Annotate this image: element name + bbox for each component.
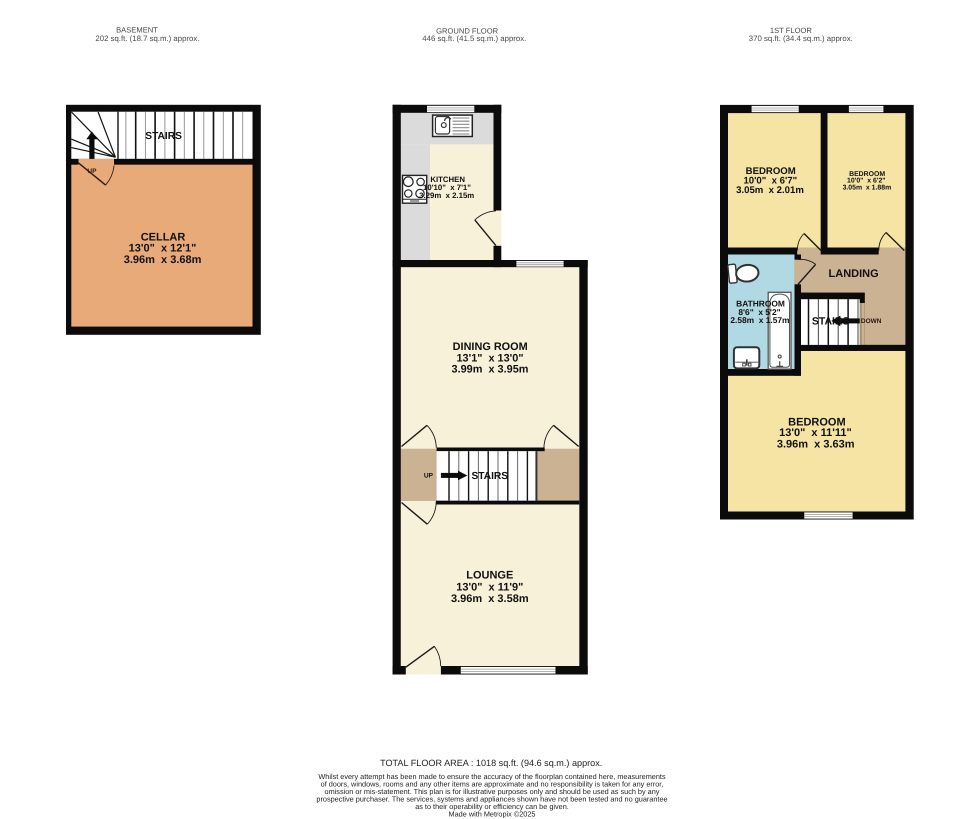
svg-text:3.96m x 3.68m: 3.96m x 3.68m [124, 254, 202, 266]
svg-text:UP: UP [87, 168, 97, 175]
svg-text:202 sq.ft. (18.7 sq.m.) approx: 202 sq.ft. (18.7 sq.m.) approx. [95, 34, 199, 43]
svg-text:3.05m x 2.01m: 3.05m x 2.01m [736, 185, 804, 196]
svg-text:13'0" x 12'1": 13'0" x 12'1" [129, 242, 197, 254]
svg-text:TOTAL FLOOR AREA : 1018 sq.ft.: TOTAL FLOOR AREA : 1018 sq.ft. (94.6 sq.… [380, 758, 602, 768]
svg-text:DINING ROOM: DINING ROOM [453, 341, 528, 353]
svg-text:LOUNGE: LOUNGE [466, 570, 513, 582]
svg-text:STAIRS: STAIRS [145, 131, 182, 142]
svg-text:13'1" x 13'0": 13'1" x 13'0" [457, 352, 524, 364]
svg-text:13'0" x 11'11": 13'0" x 11'11" [779, 427, 852, 439]
svg-text:13'0" x 11'9": 13'0" x 11'9" [456, 582, 523, 594]
svg-text:Made with Metropix ©2025: Made with Metropix ©2025 [449, 810, 536, 819]
svg-text:3.29m x 2.15m: 3.29m x 2.15m [419, 191, 474, 200]
svg-text:370 sq.ft. (34.4 sq.m.) approx: 370 sq.ft. (34.4 sq.m.) approx. [749, 34, 853, 43]
svg-text:3.99m x 3.95m: 3.99m x 3.95m [452, 364, 529, 376]
svg-text:3.96m x 3.58m: 3.96m x 3.58m [451, 593, 529, 605]
svg-text:LANDING: LANDING [829, 268, 879, 280]
svg-text:DOWN: DOWN [861, 318, 882, 325]
svg-text:3.96m x 3.63m: 3.96m x 3.63m [777, 438, 855, 450]
svg-text:STAIRS: STAIRS [812, 315, 850, 327]
svg-text:2.58m x 1.57m: 2.58m x 1.57m [730, 315, 789, 325]
svg-text:STAIRS: STAIRS [471, 471, 508, 482]
svg-text:UP: UP [424, 473, 434, 480]
svg-text:446 sq.ft. (41.5 sq.m.) approx: 446 sq.ft. (41.5 sq.m.) approx. [422, 34, 526, 43]
svg-text:3.05m x 1.88m: 3.05m x 1.88m [843, 184, 892, 191]
